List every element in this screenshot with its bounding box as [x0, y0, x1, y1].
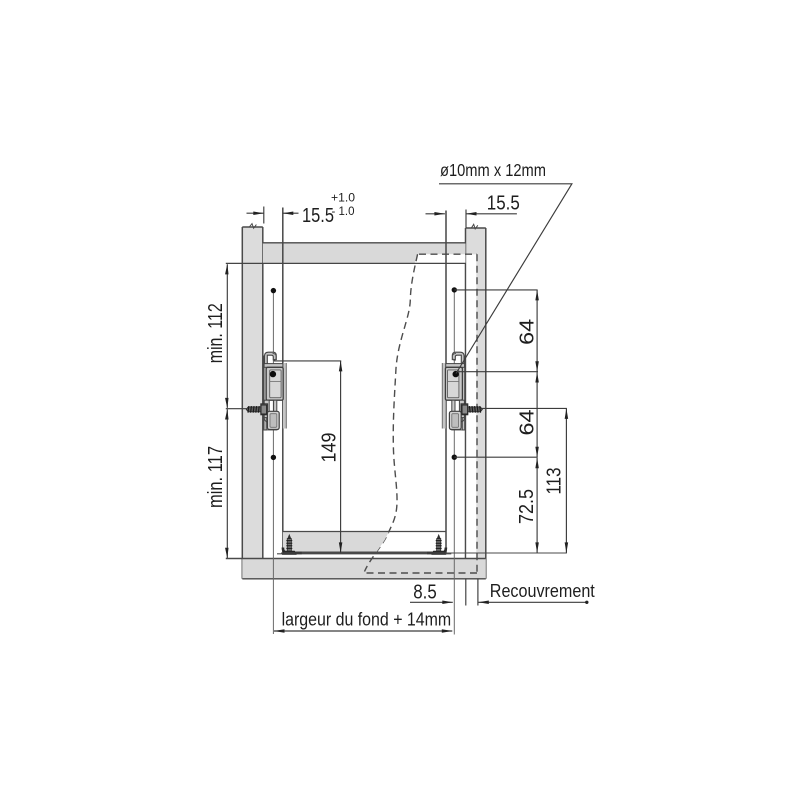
- svg-text:149: 149: [319, 433, 341, 463]
- svg-text:ø10mm x 12mm: ø10mm x 12mm: [440, 160, 546, 180]
- svg-text:min. 117: min. 117: [205, 446, 227, 508]
- svg-text:Recouvrement: Recouvrement: [490, 580, 595, 601]
- svg-text:- 1.0: - 1.0: [332, 206, 355, 218]
- svg-text:72.5: 72.5: [516, 489, 538, 524]
- svg-text:15.5: 15.5: [302, 204, 334, 227]
- svg-text:64: 64: [517, 410, 539, 436]
- svg-text:113: 113: [544, 468, 566, 495]
- svg-text:+1.0: +1.0: [331, 193, 355, 205]
- svg-text:8.5: 8.5: [413, 582, 437, 604]
- svg-text:min. 112: min. 112: [205, 303, 227, 363]
- svg-text:64: 64: [517, 319, 539, 345]
- svg-text:largeur du fond + 14mm: largeur du fond + 14mm: [282, 610, 452, 630]
- svg-text:15.5: 15.5: [487, 192, 520, 215]
